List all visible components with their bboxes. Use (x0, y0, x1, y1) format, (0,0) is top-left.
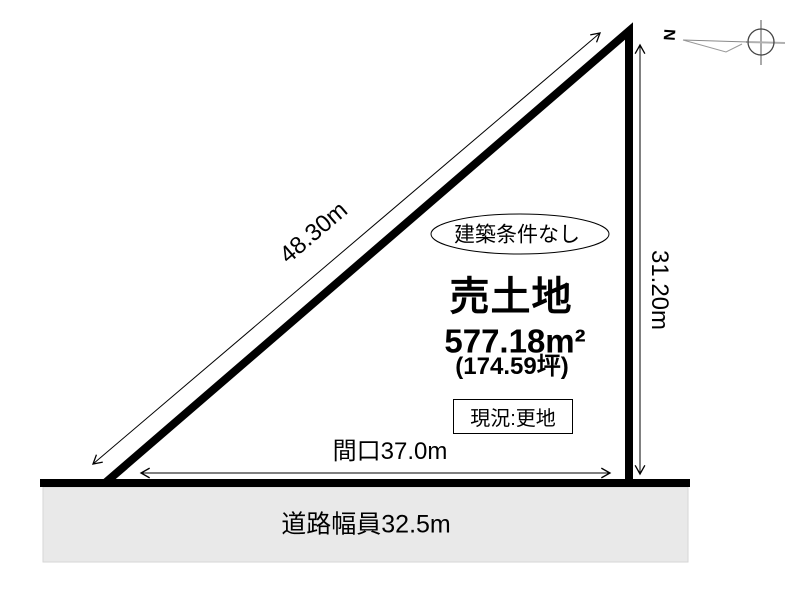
area-tsubo: (174.59坪) (455, 355, 568, 379)
diagram-canvas (0, 0, 800, 597)
land-plot-diagram: 売土地 577.18m² (174.59坪) 建築条件なし 現況:更地 48.3… (0, 0, 800, 597)
listing-title: 売土地 (450, 277, 573, 317)
north-label: N (663, 29, 680, 42)
condition-badge-label: 建築条件なし (454, 225, 580, 246)
compass-icon (683, 20, 785, 65)
road-width-label: 道路幅員32.5m (281, 513, 450, 538)
right-side-dimension-label: 31.20m (647, 250, 671, 330)
status-box-label: 現況:更地 (470, 402, 556, 431)
status-box: 現況:更地 (453, 399, 573, 434)
frontage-dimension-label: 間口37.0m (333, 440, 448, 464)
